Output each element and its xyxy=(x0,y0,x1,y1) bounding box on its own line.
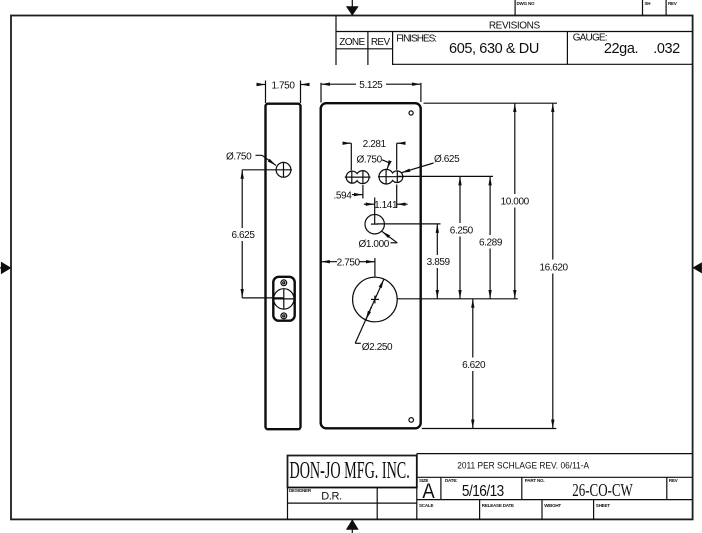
svg-text:PART NO.: PART NO. xyxy=(525,478,545,483)
svg-text:REVISIONS: REVISIONS xyxy=(489,21,541,32)
svg-text:SH: SH xyxy=(645,1,651,6)
svg-text:.032: .032 xyxy=(653,41,680,57)
svg-text:Ø2.250: Ø2.250 xyxy=(362,342,393,353)
svg-text:Ø.625: Ø.625 xyxy=(434,154,460,165)
svg-text:REV: REV xyxy=(371,37,391,48)
svg-text:DESIGNER: DESIGNER xyxy=(289,488,312,493)
svg-text:26-CO-CW: 26-CO-CW xyxy=(572,481,633,501)
svg-text:2011 PER SCHLAGE REV. 06/11-A: 2011 PER SCHLAGE REV. 06/11-A xyxy=(457,460,589,470)
svg-text:1.141: 1.141 xyxy=(374,200,398,211)
svg-text:1.750: 1.750 xyxy=(271,80,295,91)
svg-text:SCALE: SCALE xyxy=(419,503,433,508)
svg-text:WEIGHT: WEIGHT xyxy=(544,503,561,508)
svg-text:605, 630 & DU: 605, 630 & DU xyxy=(449,41,539,57)
svg-text:Ø.750: Ø.750 xyxy=(226,151,252,162)
svg-text:6.289: 6.289 xyxy=(479,238,503,249)
svg-text:5/16/13: 5/16/13 xyxy=(462,483,504,500)
svg-text:3.859: 3.859 xyxy=(427,257,451,268)
svg-text:5.125: 5.125 xyxy=(359,80,383,91)
svg-text:.594: .594 xyxy=(334,190,353,201)
svg-text:DWG NO: DWG NO xyxy=(517,1,535,6)
svg-text:D.R.: D.R. xyxy=(321,491,342,503)
svg-text:RELEASE DATE: RELEASE DATE xyxy=(482,503,514,508)
svg-text:6.620: 6.620 xyxy=(462,360,486,371)
svg-text:REV: REV xyxy=(668,1,677,6)
svg-text:6.625: 6.625 xyxy=(231,230,255,241)
svg-text:A: A xyxy=(422,480,435,503)
svg-text:10.000: 10.000 xyxy=(501,196,530,207)
svg-text:Ø.750: Ø.750 xyxy=(357,155,383,166)
svg-text:22ga.: 22ga. xyxy=(604,41,638,57)
svg-text:Ø1.000: Ø1.000 xyxy=(359,239,390,250)
svg-text:2.750: 2.750 xyxy=(337,257,361,268)
svg-text:SHEET: SHEET xyxy=(596,503,610,508)
svg-text:16.620: 16.620 xyxy=(540,262,569,273)
svg-text:DATE:: DATE: xyxy=(445,478,458,483)
svg-text:DON-JO MFG. INC.: DON-JO MFG. INC. xyxy=(290,457,410,484)
svg-text:6.250: 6.250 xyxy=(450,225,474,236)
svg-text:GAUGE:: GAUGE: xyxy=(573,33,607,44)
svg-text:FINISHES:: FINISHES: xyxy=(396,34,436,45)
svg-text:2.281: 2.281 xyxy=(363,139,387,150)
svg-text:ZONE: ZONE xyxy=(339,37,365,48)
svg-text:REV: REV xyxy=(669,478,678,483)
